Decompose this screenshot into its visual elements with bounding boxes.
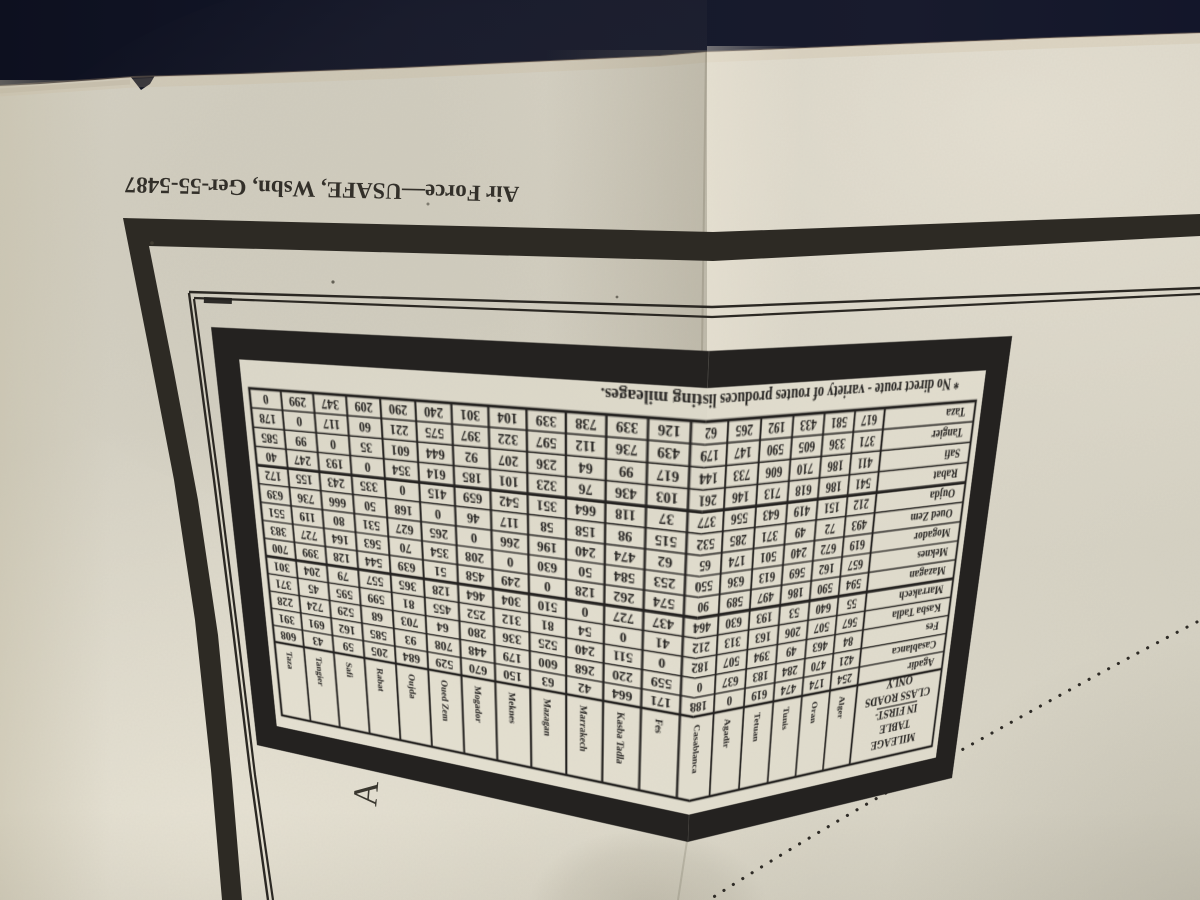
svg-text:299: 299 <box>288 394 307 411</box>
svg-text:394: 394 <box>753 648 770 666</box>
svg-text:240: 240 <box>790 544 808 562</box>
svg-text:542: 542 <box>499 493 519 511</box>
svg-text:415: 415 <box>427 486 447 503</box>
svg-text:A: A <box>345 778 386 807</box>
svg-text:98: 98 <box>617 527 632 545</box>
svg-text:158: 158 <box>575 522 596 540</box>
svg-text:182: 182 <box>691 659 709 677</box>
svg-text:155: 155 <box>295 471 313 487</box>
svg-text:0: 0 <box>726 693 733 709</box>
svg-text:240: 240 <box>574 642 594 660</box>
svg-text:253: 253 <box>653 573 676 592</box>
svg-text:117: 117 <box>322 416 340 433</box>
svg-text:493: 493 <box>850 516 867 534</box>
svg-text:196: 196 <box>537 538 558 556</box>
svg-text:243: 243 <box>327 475 346 492</box>
svg-text:421: 421 <box>838 652 854 669</box>
svg-text:Oujda: Oujda <box>406 673 417 700</box>
svg-text:265: 265 <box>429 525 448 542</box>
svg-text:0: 0 <box>329 436 336 452</box>
svg-text:619: 619 <box>849 536 866 554</box>
svg-text:117: 117 <box>500 514 520 532</box>
svg-text:347: 347 <box>320 396 339 413</box>
svg-text:371: 371 <box>858 433 875 451</box>
svg-text:Tangier: Tangier <box>930 425 963 443</box>
svg-text:93: 93 <box>404 632 417 648</box>
svg-text:266: 266 <box>500 534 520 552</box>
svg-text:544: 544 <box>364 554 383 571</box>
svg-text:185: 185 <box>462 469 482 487</box>
svg-text:186: 186 <box>826 457 844 475</box>
svg-text:640: 640 <box>815 600 832 618</box>
svg-text:597: 597 <box>535 434 556 452</box>
svg-text:525: 525 <box>538 636 558 654</box>
svg-text:290: 290 <box>388 401 408 418</box>
svg-text:186: 186 <box>825 478 843 496</box>
svg-text:Safi: Safi <box>943 446 961 462</box>
svg-text:313: 313 <box>724 634 742 652</box>
svg-text:377: 377 <box>697 513 716 532</box>
svg-text:Rabat: Rabat <box>374 667 385 693</box>
svg-text:112: 112 <box>575 437 596 456</box>
svg-text:118: 118 <box>615 506 636 525</box>
svg-text:212: 212 <box>852 496 869 514</box>
svg-text:103: 103 <box>655 488 678 507</box>
svg-text:209: 209 <box>354 399 373 416</box>
svg-text:192: 192 <box>767 418 786 437</box>
svg-text:713: 713 <box>763 485 781 504</box>
svg-text:351: 351 <box>536 497 557 515</box>
svg-text:339: 339 <box>615 418 638 437</box>
svg-text:104: 104 <box>497 409 518 427</box>
svg-text:497: 497 <box>757 589 775 607</box>
svg-text:301: 301 <box>460 406 480 424</box>
svg-text:323: 323 <box>536 476 557 494</box>
svg-text:515: 515 <box>654 531 677 550</box>
svg-text:46: 46 <box>466 510 480 527</box>
svg-text:Mogador: Mogador <box>472 685 483 724</box>
svg-text:0: 0 <box>581 604 588 620</box>
svg-text:68: 68 <box>371 609 384 625</box>
svg-text:433: 433 <box>799 416 817 435</box>
svg-text:474: 474 <box>614 548 636 567</box>
svg-text:Mazagan: Mazagan <box>541 698 552 738</box>
svg-text:76: 76 <box>578 481 593 499</box>
svg-text:594: 594 <box>845 576 862 593</box>
svg-text:458: 458 <box>465 568 485 585</box>
svg-text:581: 581 <box>830 414 848 432</box>
svg-text:556: 556 <box>730 510 748 529</box>
svg-text:55: 55 <box>846 596 858 613</box>
svg-text:551: 551 <box>268 505 286 521</box>
svg-text:614: 614 <box>426 465 446 482</box>
svg-text:575: 575 <box>424 425 444 443</box>
svg-text:507: 507 <box>723 653 741 671</box>
svg-text:193: 193 <box>755 609 773 627</box>
svg-text:733: 733 <box>732 466 751 485</box>
svg-text:70: 70 <box>399 540 412 556</box>
svg-text:126: 126 <box>657 421 681 440</box>
svg-text:60: 60 <box>358 419 371 436</box>
svg-text:639: 639 <box>397 559 416 576</box>
svg-text:567: 567 <box>841 614 858 631</box>
svg-text:371: 371 <box>275 577 292 593</box>
svg-text:146: 146 <box>731 488 750 507</box>
svg-text:419: 419 <box>793 502 811 520</box>
svg-text:62: 62 <box>704 424 717 443</box>
svg-text:727: 727 <box>300 527 318 543</box>
svg-text:354: 354 <box>391 462 410 479</box>
svg-text:Safi: Safi <box>344 662 354 679</box>
svg-text:79: 79 <box>337 568 350 584</box>
svg-text:40: 40 <box>265 450 278 466</box>
svg-text:92: 92 <box>464 449 478 466</box>
svg-text:168: 168 <box>394 501 413 518</box>
svg-text:174: 174 <box>728 552 746 571</box>
svg-text:569: 569 <box>788 564 805 582</box>
svg-text:172: 172 <box>264 468 282 484</box>
svg-text:63: 63 <box>541 674 554 690</box>
svg-text:354: 354 <box>430 544 449 561</box>
svg-text:557: 557 <box>366 573 384 590</box>
svg-text:531: 531 <box>362 517 380 534</box>
svg-text:147: 147 <box>734 444 753 463</box>
svg-text:261: 261 <box>699 491 717 510</box>
svg-text:262: 262 <box>613 588 635 606</box>
svg-text:228: 228 <box>276 594 293 610</box>
svg-text:0: 0 <box>696 679 703 695</box>
svg-text:455: 455 <box>432 601 451 618</box>
svg-text:550: 550 <box>695 577 713 596</box>
svg-text:464: 464 <box>466 587 485 604</box>
svg-text:81: 81 <box>541 617 554 634</box>
svg-text:42: 42 <box>578 680 592 697</box>
svg-text:249: 249 <box>501 573 521 591</box>
svg-text:240: 240 <box>575 543 596 561</box>
svg-text:644: 644 <box>425 445 445 463</box>
svg-text:463: 463 <box>811 638 828 655</box>
svg-text:601: 601 <box>391 442 410 459</box>
svg-text:99: 99 <box>294 433 307 449</box>
svg-text:510: 510 <box>537 598 557 616</box>
svg-text:590: 590 <box>816 580 833 598</box>
svg-text:221: 221 <box>389 422 408 439</box>
svg-text:64: 64 <box>436 620 449 636</box>
svg-text:128: 128 <box>332 550 350 566</box>
svg-text:339: 339 <box>535 412 556 430</box>
svg-text:Taza: Taza <box>945 404 966 421</box>
svg-text:589: 589 <box>726 593 744 611</box>
svg-text:464: 464 <box>693 619 711 638</box>
svg-text:383: 383 <box>269 523 287 539</box>
svg-text:736: 736 <box>297 490 315 506</box>
svg-text:585: 585 <box>260 430 278 446</box>
svg-text:58: 58 <box>540 518 554 535</box>
svg-text:62: 62 <box>657 553 673 571</box>
svg-text:606: 606 <box>765 463 783 482</box>
svg-text:724: 724 <box>306 599 324 615</box>
svg-text:119: 119 <box>298 509 316 525</box>
svg-text:252: 252 <box>466 606 485 623</box>
svg-text:301: 301 <box>273 559 290 575</box>
svg-text:630: 630 <box>725 614 743 632</box>
svg-text:80: 80 <box>332 513 345 529</box>
svg-text:736: 736 <box>615 440 638 459</box>
svg-text:280: 280 <box>467 624 486 641</box>
svg-text:599: 599 <box>367 591 385 608</box>
svg-text:617: 617 <box>860 411 878 429</box>
svg-text:397: 397 <box>460 428 480 446</box>
svg-text:72: 72 <box>824 520 836 537</box>
svg-text:43: 43 <box>312 634 324 649</box>
svg-text:90: 90 <box>697 598 709 616</box>
svg-text:186: 186 <box>787 584 804 602</box>
svg-text:0: 0 <box>399 482 406 498</box>
svg-text:365: 365 <box>398 577 417 594</box>
svg-text:630: 630 <box>537 558 557 576</box>
svg-text:49: 49 <box>794 524 806 542</box>
svg-text:0: 0 <box>619 629 627 645</box>
svg-text:336: 336 <box>828 435 846 453</box>
svg-text:727: 727 <box>613 608 635 626</box>
svg-text:501: 501 <box>760 548 778 566</box>
svg-text:590: 590 <box>766 441 784 460</box>
svg-text:Meknes: Meknes <box>506 691 517 724</box>
svg-text:128: 128 <box>575 583 596 601</box>
svg-text:639: 639 <box>266 487 284 503</box>
svg-text:164: 164 <box>331 531 349 548</box>
svg-text:304: 304 <box>501 592 521 610</box>
svg-text:49: 49 <box>785 643 797 660</box>
svg-text:627: 627 <box>395 521 414 538</box>
svg-text:151: 151 <box>823 499 840 517</box>
svg-text:50: 50 <box>578 564 592 581</box>
svg-text:128: 128 <box>431 582 450 599</box>
svg-text:81: 81 <box>402 596 414 612</box>
svg-text:399: 399 <box>301 546 319 562</box>
svg-text:439: 439 <box>657 444 681 463</box>
svg-text:541: 541 <box>855 475 872 493</box>
svg-text:37: 37 <box>658 510 674 528</box>
svg-text:84: 84 <box>842 634 854 650</box>
svg-text:618: 618 <box>794 481 812 499</box>
svg-text:664: 664 <box>575 501 596 519</box>
svg-text:391: 391 <box>278 611 295 627</box>
svg-text:312: 312 <box>501 611 521 629</box>
svg-text:691: 691 <box>308 616 325 632</box>
svg-text:636: 636 <box>727 573 745 591</box>
svg-text:595: 595 <box>335 586 353 602</box>
svg-text:511: 511 <box>613 648 633 666</box>
svg-text:Kasba Tadla: Kasba Tadla <box>614 711 626 765</box>
svg-text:285: 285 <box>729 531 747 550</box>
svg-text:Tunis: Tunis <box>780 706 790 730</box>
svg-text:436: 436 <box>614 484 636 503</box>
svg-text:0: 0 <box>295 414 302 430</box>
svg-text:411: 411 <box>857 454 874 472</box>
svg-text:584: 584 <box>613 568 635 587</box>
svg-text:666: 666 <box>328 494 347 511</box>
svg-text:Rabat: Rabat <box>932 466 959 483</box>
svg-text:236: 236 <box>536 455 557 473</box>
svg-text:162: 162 <box>818 560 835 578</box>
svg-text:703: 703 <box>400 614 419 631</box>
svg-text:710: 710 <box>796 460 814 478</box>
svg-text:101: 101 <box>499 473 519 491</box>
svg-text:Oued Zem: Oued Zem <box>439 679 450 723</box>
svg-text:212: 212 <box>692 639 710 657</box>
svg-text:700: 700 <box>271 541 289 557</box>
svg-text:336: 336 <box>502 630 522 647</box>
svg-text:204: 204 <box>303 564 321 580</box>
svg-text:507: 507 <box>813 619 830 637</box>
svg-text:51: 51 <box>434 564 447 580</box>
svg-text:605: 605 <box>797 438 815 457</box>
svg-text:529: 529 <box>337 604 355 620</box>
svg-text:335: 335 <box>359 478 378 495</box>
svg-text:Fes: Fes <box>652 718 664 734</box>
svg-text:208: 208 <box>464 549 484 566</box>
svg-text:65: 65 <box>699 557 712 575</box>
svg-text:657: 657 <box>847 556 864 574</box>
svg-text:207: 207 <box>498 452 519 470</box>
svg-text:240: 240 <box>423 404 443 422</box>
svg-text:371: 371 <box>761 527 779 545</box>
svg-text:179: 179 <box>700 446 719 465</box>
svg-text:532: 532 <box>697 535 716 554</box>
svg-text:45: 45 <box>307 582 319 597</box>
svg-text:0: 0 <box>434 506 441 522</box>
svg-text:178: 178 <box>258 411 276 427</box>
svg-text:162: 162 <box>338 621 356 637</box>
svg-text:35: 35 <box>359 439 372 455</box>
svg-text:0: 0 <box>364 459 371 475</box>
svg-text:613: 613 <box>758 569 776 587</box>
svg-text:Fes: Fes <box>925 619 940 634</box>
svg-text:0: 0 <box>658 655 666 671</box>
svg-text:0: 0 <box>544 579 551 595</box>
svg-text:0: 0 <box>470 530 477 546</box>
svg-text:144: 144 <box>699 469 718 488</box>
svg-text:247: 247 <box>293 452 311 468</box>
svg-text:64: 64 <box>578 459 593 477</box>
svg-text:163: 163 <box>754 629 771 647</box>
svg-text:563: 563 <box>363 536 382 553</box>
svg-text:54: 54 <box>578 623 592 640</box>
svg-text:738: 738 <box>575 415 597 434</box>
svg-text:206: 206 <box>784 624 801 642</box>
svg-text:Agadir: Agadir <box>721 718 732 750</box>
svg-text:193: 193 <box>325 455 344 472</box>
svg-text:437: 437 <box>652 614 674 633</box>
svg-text:643: 643 <box>762 506 780 525</box>
svg-text:659: 659 <box>462 489 482 507</box>
svg-text:672: 672 <box>820 540 837 558</box>
svg-text:41: 41 <box>655 635 670 652</box>
svg-text:Marrakech: Marrakech <box>577 704 588 752</box>
svg-text:53: 53 <box>788 605 800 622</box>
svg-text:617: 617 <box>656 466 680 485</box>
svg-text:50: 50 <box>363 498 376 514</box>
svg-text:574: 574 <box>652 594 675 613</box>
svg-text:284: 284 <box>781 662 798 680</box>
svg-text:322: 322 <box>497 431 518 449</box>
svg-text:59: 59 <box>342 639 354 654</box>
svg-text:99: 99 <box>618 463 633 481</box>
svg-text:0: 0 <box>507 554 514 570</box>
svg-text:265: 265 <box>735 421 754 440</box>
